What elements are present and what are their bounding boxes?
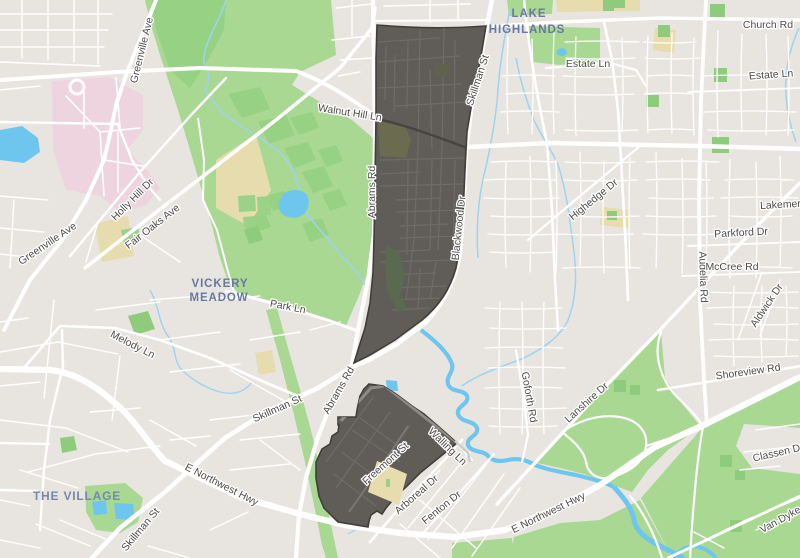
svg-text:THE VILLAGE: THE VILLAGE (33, 489, 121, 503)
svg-text:Church Rd: Church Rd (743, 19, 793, 31)
svg-text:LAKE: LAKE (512, 8, 547, 20)
svg-text:Lakemere: Lakemere (760, 198, 800, 212)
svg-text:MEADOW: MEADOW (189, 292, 248, 304)
svg-text:Abrams Rd: Abrams Rd (366, 166, 378, 219)
svg-text:Estate Ln: Estate Ln (566, 58, 611, 70)
svg-text:HIGHLANDS: HIGHLANDS (489, 24, 565, 36)
svg-text:VICKERY: VICKERY (192, 278, 249, 290)
svg-text:Audelia Rd: Audelia Rd (696, 251, 710, 303)
svg-text:McCree Rd: McCree Rd (705, 261, 758, 273)
